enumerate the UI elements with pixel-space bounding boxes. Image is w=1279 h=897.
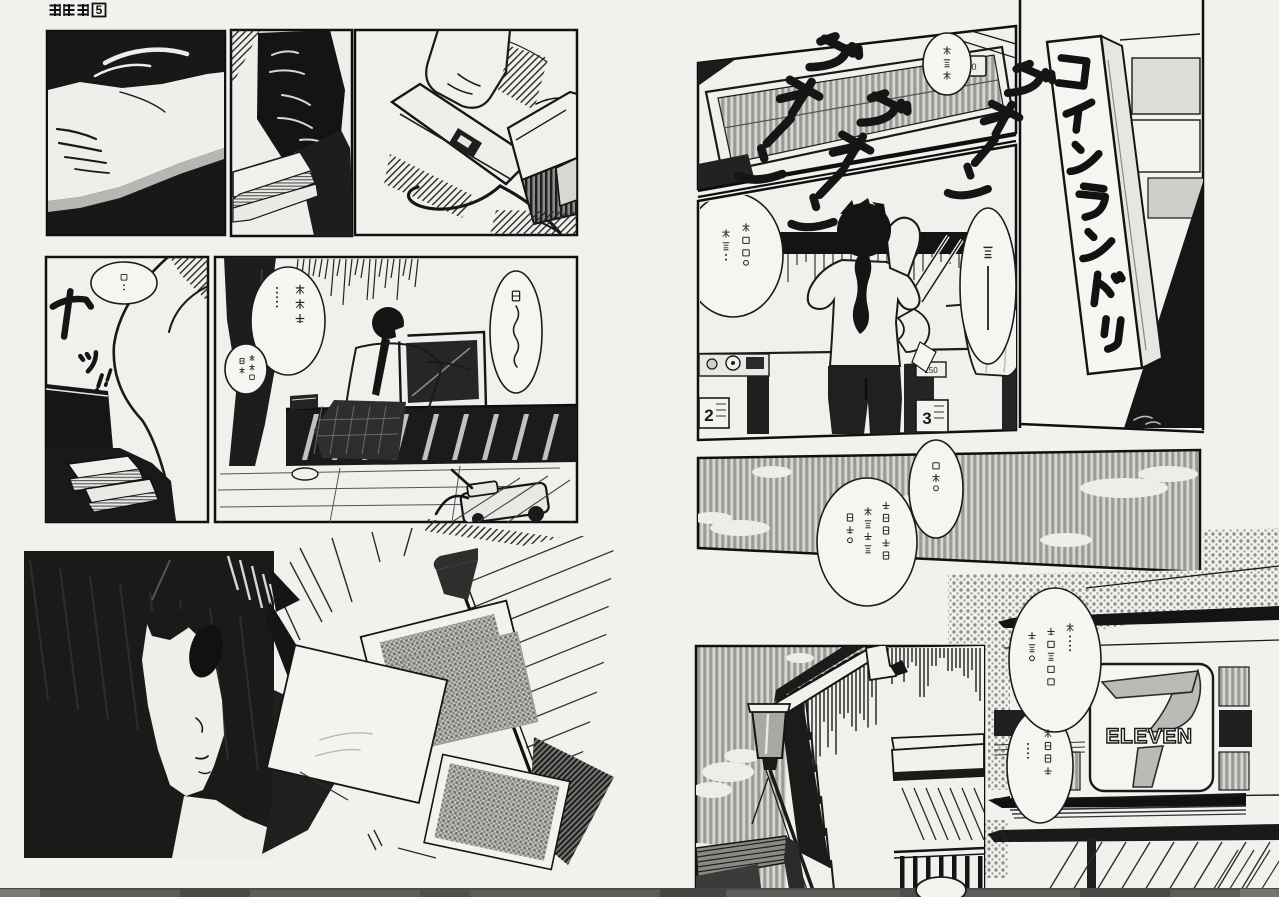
svg-text:ELEVEN: ELEVEN: [1105, 725, 1192, 748]
svg-text:2: 2: [704, 406, 713, 425]
svg-text:5: 5: [96, 3, 103, 17]
svg-text:3: 3: [922, 409, 931, 428]
